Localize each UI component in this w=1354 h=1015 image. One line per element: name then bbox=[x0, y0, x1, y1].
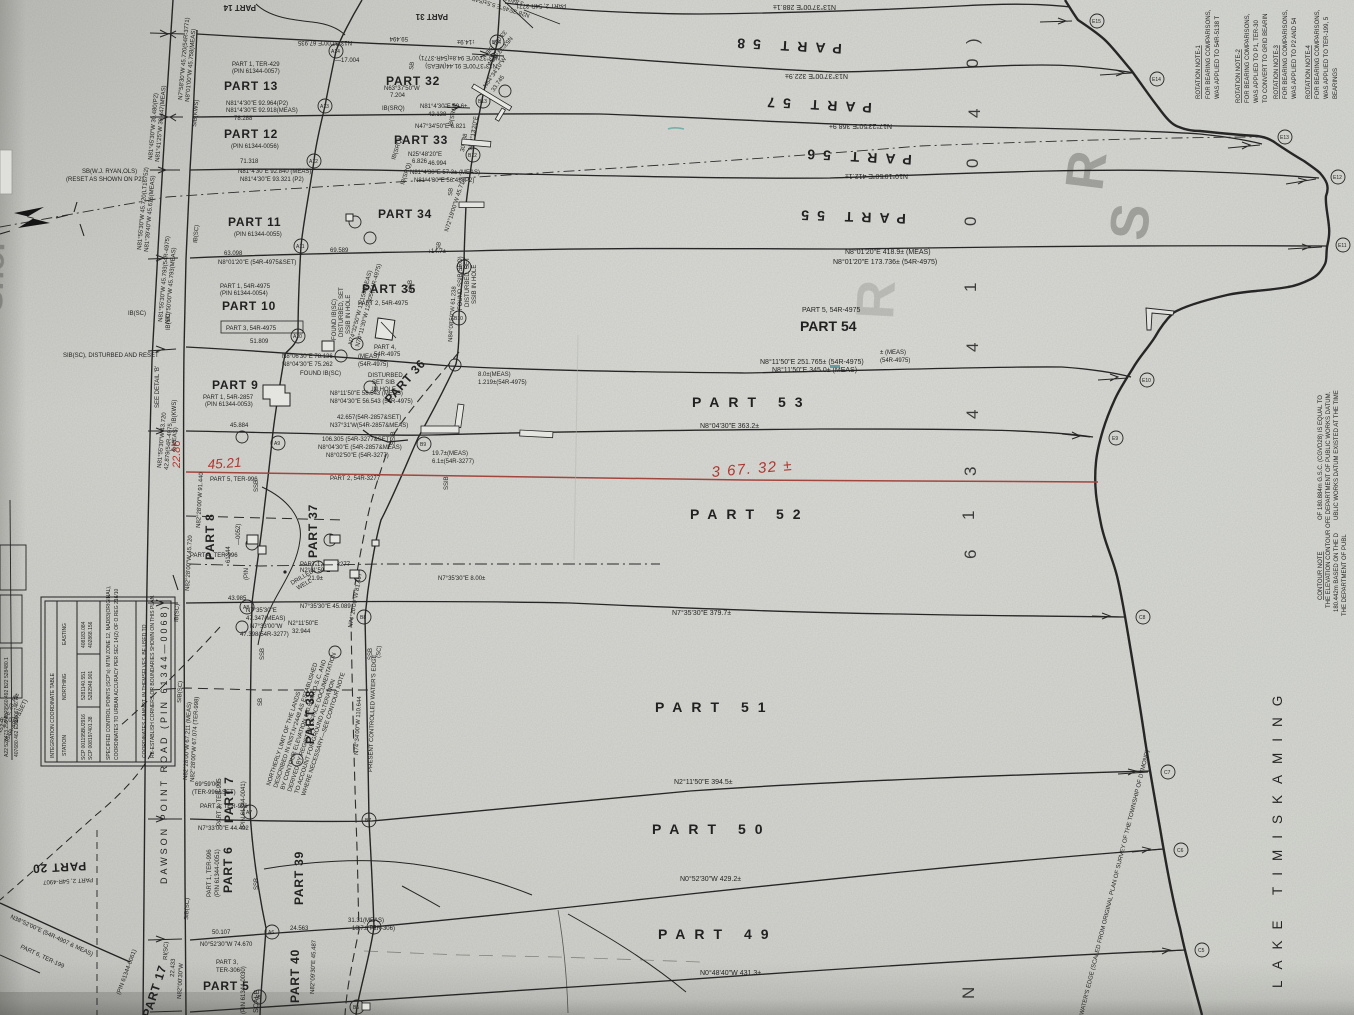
svg-text:SEE DETAIL 'B': SEE DETAIL 'B' bbox=[155, 366, 161, 408]
svg-text:SIB(SC): SIB(SC) bbox=[184, 898, 191, 920]
svg-text:10.7±(TER-306): 10.7±(TER-306) bbox=[352, 926, 395, 932]
svg-text:N7°35'30"E: N7°35'30"E bbox=[246, 608, 277, 614]
svg-text:SCP 001195BU2916: SCP 001195BU2916 bbox=[81, 714, 87, 760]
svg-text:SCP 008197401.38: SCP 008197401.38 bbox=[88, 716, 94, 760]
svg-text:COORDINATES TO URBAN ACCURA: COORDINATES TO URBAN ACCURACY PER SEC 14… bbox=[114, 588, 120, 760]
svg-text:PART 4, TER-996: PART 4, TER-996 bbox=[190, 553, 238, 559]
svg-text:47.398(54R-3277): 47.398(54R-3277) bbox=[240, 632, 289, 638]
svg-text:IB(SC): IB(SC) bbox=[128, 311, 146, 317]
svg-text:SPECIFIED CONTROL POINTS (S: SPECIFIED CONTROL POINTS (SCP's): MTM ZO… bbox=[106, 586, 112, 760]
svg-text:N7°33'00"W: N7°33'00"W bbox=[250, 624, 283, 630]
svg-text:(RESET AS SHOWN ON P2): (RESET AS SHOWN ON P2) bbox=[66, 177, 144, 183]
svg-text:PART 3, TER-996: PART 3, TER-996 bbox=[200, 804, 248, 810]
svg-text:69°59'00": 69°59'00" bbox=[195, 782, 221, 788]
svg-text:408183.084: 408183.084 bbox=[81, 621, 87, 648]
svg-text:SB(W.J. RYAN,OLS): SB(W.J. RYAN,OLS) bbox=[82, 169, 137, 175]
svg-text:32.944: 32.944 bbox=[292, 629, 311, 635]
svg-text:RI(SC): RI(SC) bbox=[163, 941, 170, 960]
svg-text:N2°11'50"E: N2°11'50"E bbox=[288, 621, 318, 627]
svg-text:COORDINATES CANNOT, IN THEM: COORDINATES CANNOT, IN THEMSELVES, BE US… bbox=[142, 624, 148, 758]
svg-text:SIB(SC), DISTURBED AND RESET: SIB(SC), DISTURBED AND RESET bbox=[63, 353, 159, 359]
svg-text:50.107: 50.107 bbox=[212, 930, 231, 936]
svg-text:INTEGRATION COORDINATE TABLE: INTEGRATION COORDINATE TABLE bbox=[50, 672, 56, 758]
svg-text:31.31(MEAS): 31.31(MEAS) bbox=[348, 918, 384, 924]
svg-text:(TER-996&SET): (TER-996&SET) bbox=[192, 790, 236, 796]
svg-text:—17.004: —17.004 bbox=[335, 58, 360, 64]
svg-text:24.563: 24.563 bbox=[290, 926, 309, 932]
svg-text:5281140.551: 5281140.551 bbox=[81, 671, 87, 700]
svg-text:RE-ESTABLISH CORNERS OR BOU: RE-ESTABLISH CORNERS OR BOUNDARIES SHOWN… bbox=[150, 595, 156, 758]
svg-text:(54R-4975): (54R-4975) bbox=[880, 358, 910, 364]
svg-text:NORTHING: NORTHING bbox=[62, 673, 68, 700]
svg-text:SIB(SC): SIB(SC) bbox=[177, 681, 184, 703]
svg-text:IB(SC): IB(SC) bbox=[166, 312, 172, 330]
svg-text:22.433: 22.433 bbox=[170, 958, 177, 977]
svg-text:5282948.901: 5282948.901 bbox=[88, 671, 94, 700]
svg-text:67.074: 67.074 bbox=[0, 718, 19, 724]
svg-text:IB(SC): IB(SC) bbox=[174, 604, 181, 622]
svg-text:± (MEAS): ± (MEAS) bbox=[880, 350, 906, 356]
svg-text:43.985: 43.985 bbox=[228, 596, 247, 602]
svg-text:SCALE: SCALE bbox=[253, 990, 261, 1014]
svg-text:STATION: STATION bbox=[62, 735, 68, 756]
svg-text:EASTING: EASTING bbox=[62, 623, 68, 645]
svg-text:IB(KWS): IB(KWS) bbox=[172, 400, 178, 423]
svg-text:N7°35'30"E 45.089: N7°35'30"E 45.089 bbox=[300, 604, 351, 610]
svg-text:N7°35'30"E 8.00±: N7°35'30"E 8.00± bbox=[438, 576, 486, 582]
svg-text:402868.156: 402868.156 bbox=[88, 621, 94, 648]
svg-text:N7°33'00"E 44.492: N7°33'00"E 44.492 bbox=[198, 826, 249, 832]
svg-text:N0°52'30"W 74.670: N0°52'30"W 74.670 bbox=[200, 942, 253, 948]
